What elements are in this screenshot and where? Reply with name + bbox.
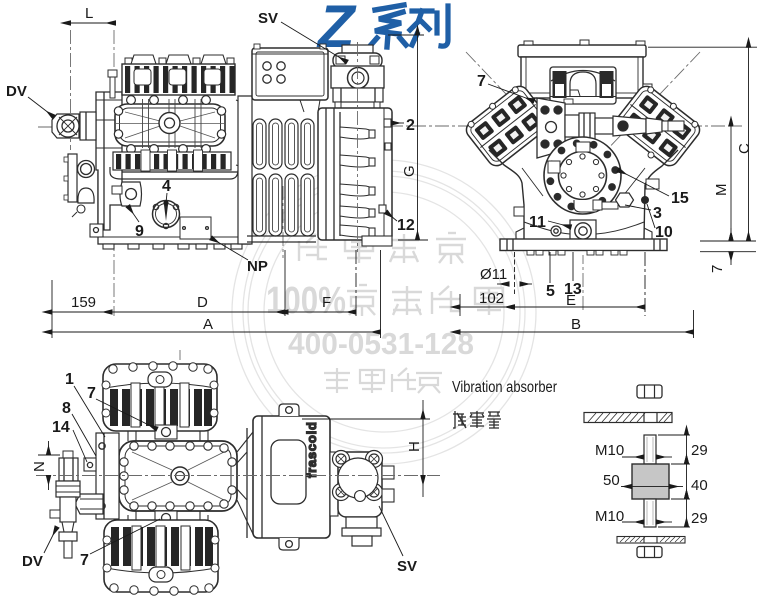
svg-text:100%: 100% bbox=[266, 280, 346, 322]
svg-text:frascold: frascold bbox=[304, 422, 319, 478]
svg-text:D: D bbox=[197, 294, 208, 311]
svg-text:NP: NP bbox=[247, 258, 268, 275]
svg-text:Ø11: Ø11 bbox=[480, 266, 507, 283]
svg-text:4: 4 bbox=[162, 178, 171, 195]
svg-text:8: 8 bbox=[62, 400, 71, 417]
svg-text:L: L bbox=[85, 5, 93, 22]
svg-text:7: 7 bbox=[477, 73, 486, 90]
svg-text:N: N bbox=[31, 461, 48, 472]
svg-text:12: 12 bbox=[397, 217, 415, 234]
svg-text:1: 1 bbox=[65, 371, 74, 388]
svg-text:40: 40 bbox=[691, 477, 708, 494]
svg-text:H: H bbox=[406, 441, 423, 452]
svg-text:Vibration absorber: Vibration absorber bbox=[452, 379, 557, 396]
svg-text:3: 3 bbox=[653, 205, 662, 222]
svg-text:B: B bbox=[571, 316, 581, 333]
svg-text:A: A bbox=[203, 316, 213, 333]
svg-text:29: 29 bbox=[691, 442, 708, 459]
svg-text:5: 5 bbox=[546, 283, 555, 300]
svg-text:11: 11 bbox=[529, 214, 546, 231]
svg-text:SV: SV bbox=[397, 558, 417, 575]
svg-text:29: 29 bbox=[691, 510, 708, 527]
svg-text:DV: DV bbox=[22, 553, 43, 570]
svg-text:15: 15 bbox=[671, 190, 689, 207]
svg-text:7: 7 bbox=[709, 265, 726, 273]
svg-text:159: 159 bbox=[71, 294, 96, 311]
svg-text:DV: DV bbox=[6, 83, 27, 100]
svg-text:M: M bbox=[713, 184, 730, 197]
svg-text:9: 9 bbox=[135, 223, 144, 240]
svg-text:G: G bbox=[401, 165, 418, 177]
svg-text:F: F bbox=[322, 294, 331, 311]
svg-text:400-0531-128: 400-0531-128 bbox=[288, 326, 474, 361]
svg-text:50: 50 bbox=[603, 472, 620, 489]
svg-text:M10: M10 bbox=[595, 442, 624, 459]
svg-text:C: C bbox=[736, 143, 753, 154]
svg-text:10: 10 bbox=[655, 224, 673, 241]
svg-text:7: 7 bbox=[87, 385, 96, 402]
svg-text:102: 102 bbox=[479, 290, 504, 307]
svg-text:SV: SV bbox=[258, 10, 278, 27]
svg-text:M10: M10 bbox=[595, 508, 624, 525]
svg-text:14: 14 bbox=[52, 419, 70, 436]
svg-text:2: 2 bbox=[406, 117, 415, 134]
svg-text:E: E bbox=[566, 292, 576, 309]
svg-text:7: 7 bbox=[80, 552, 89, 569]
